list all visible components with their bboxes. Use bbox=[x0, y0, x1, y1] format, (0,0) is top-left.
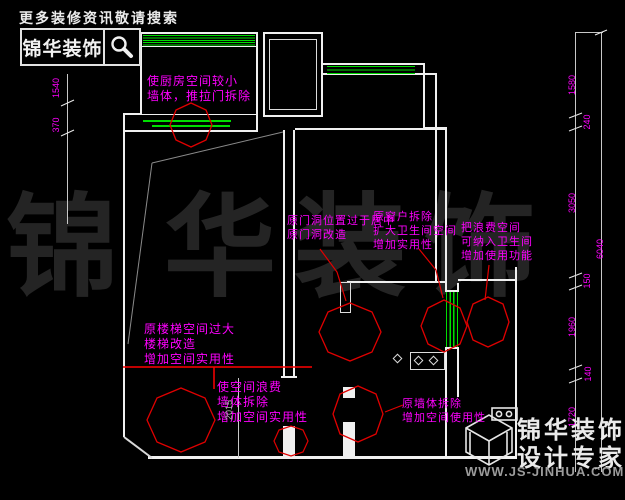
dim-value: 1540 bbox=[51, 74, 61, 102]
revision-cloud-stair bbox=[147, 388, 215, 452]
revision-cloud-door bbox=[170, 103, 212, 147]
footer-website-url: WWW.JS-JINHUA.COM bbox=[465, 464, 624, 479]
cad-floorplan-canvas: 锦 华 装 饰 更多装修资讯敬请搜索 锦华装饰 bbox=[0, 0, 625, 500]
stair-outline bbox=[152, 132, 283, 163]
dim-value: 150 bbox=[582, 267, 592, 295]
jinhua-logo: 锦华装饰 bbox=[20, 28, 141, 66]
dim-value: 3050 bbox=[567, 189, 577, 217]
leader-door bbox=[320, 249, 346, 301]
dim-value: 2015 bbox=[224, 396, 234, 424]
revision-cloud-lower bbox=[333, 386, 383, 442]
leader-wall-removed bbox=[385, 405, 403, 412]
annotation-window-removed: 原窗户拆除 扩大卫生间空间 增加实用性 bbox=[373, 210, 457, 252]
logo-text: 锦华装饰 bbox=[22, 30, 103, 64]
revision-cloud-window-left bbox=[421, 300, 467, 352]
dim-value: 370 bbox=[51, 111, 61, 139]
annotation-kitchen-wall: 使厨房空间较小 墙体，推拉门拆除 bbox=[147, 74, 251, 104]
wall-corner-diagonal bbox=[124, 437, 152, 458]
dim-value: 240 bbox=[582, 108, 592, 136]
revision-cloud-window-right bbox=[467, 297, 509, 347]
revision-cloud-center bbox=[319, 303, 381, 361]
annotation-stair-space: 原楼梯空间过大 楼梯改造 增加空间实用性 bbox=[144, 322, 235, 367]
annotation-wall-removed-right: 原墙体拆除 增加空间使用性 bbox=[402, 397, 486, 425]
leader-window bbox=[419, 249, 443, 298]
dim-value: 1960 bbox=[567, 313, 577, 341]
dim-value: 1580 bbox=[567, 71, 577, 99]
magnifier-icon bbox=[105, 30, 139, 64]
dim-value: 140 bbox=[583, 360, 593, 388]
annotation-wasted-space: 把浪费空间 可纳入卫生间 增加使用功能 bbox=[461, 221, 533, 263]
dim-value-total: 6040 bbox=[595, 235, 605, 263]
search-hint-text: 更多装修资讯敬请搜索 bbox=[19, 8, 179, 28]
stair-outline bbox=[128, 163, 152, 344]
revision-cloud-pier bbox=[274, 426, 308, 456]
leader-wasted-space bbox=[485, 265, 489, 300]
